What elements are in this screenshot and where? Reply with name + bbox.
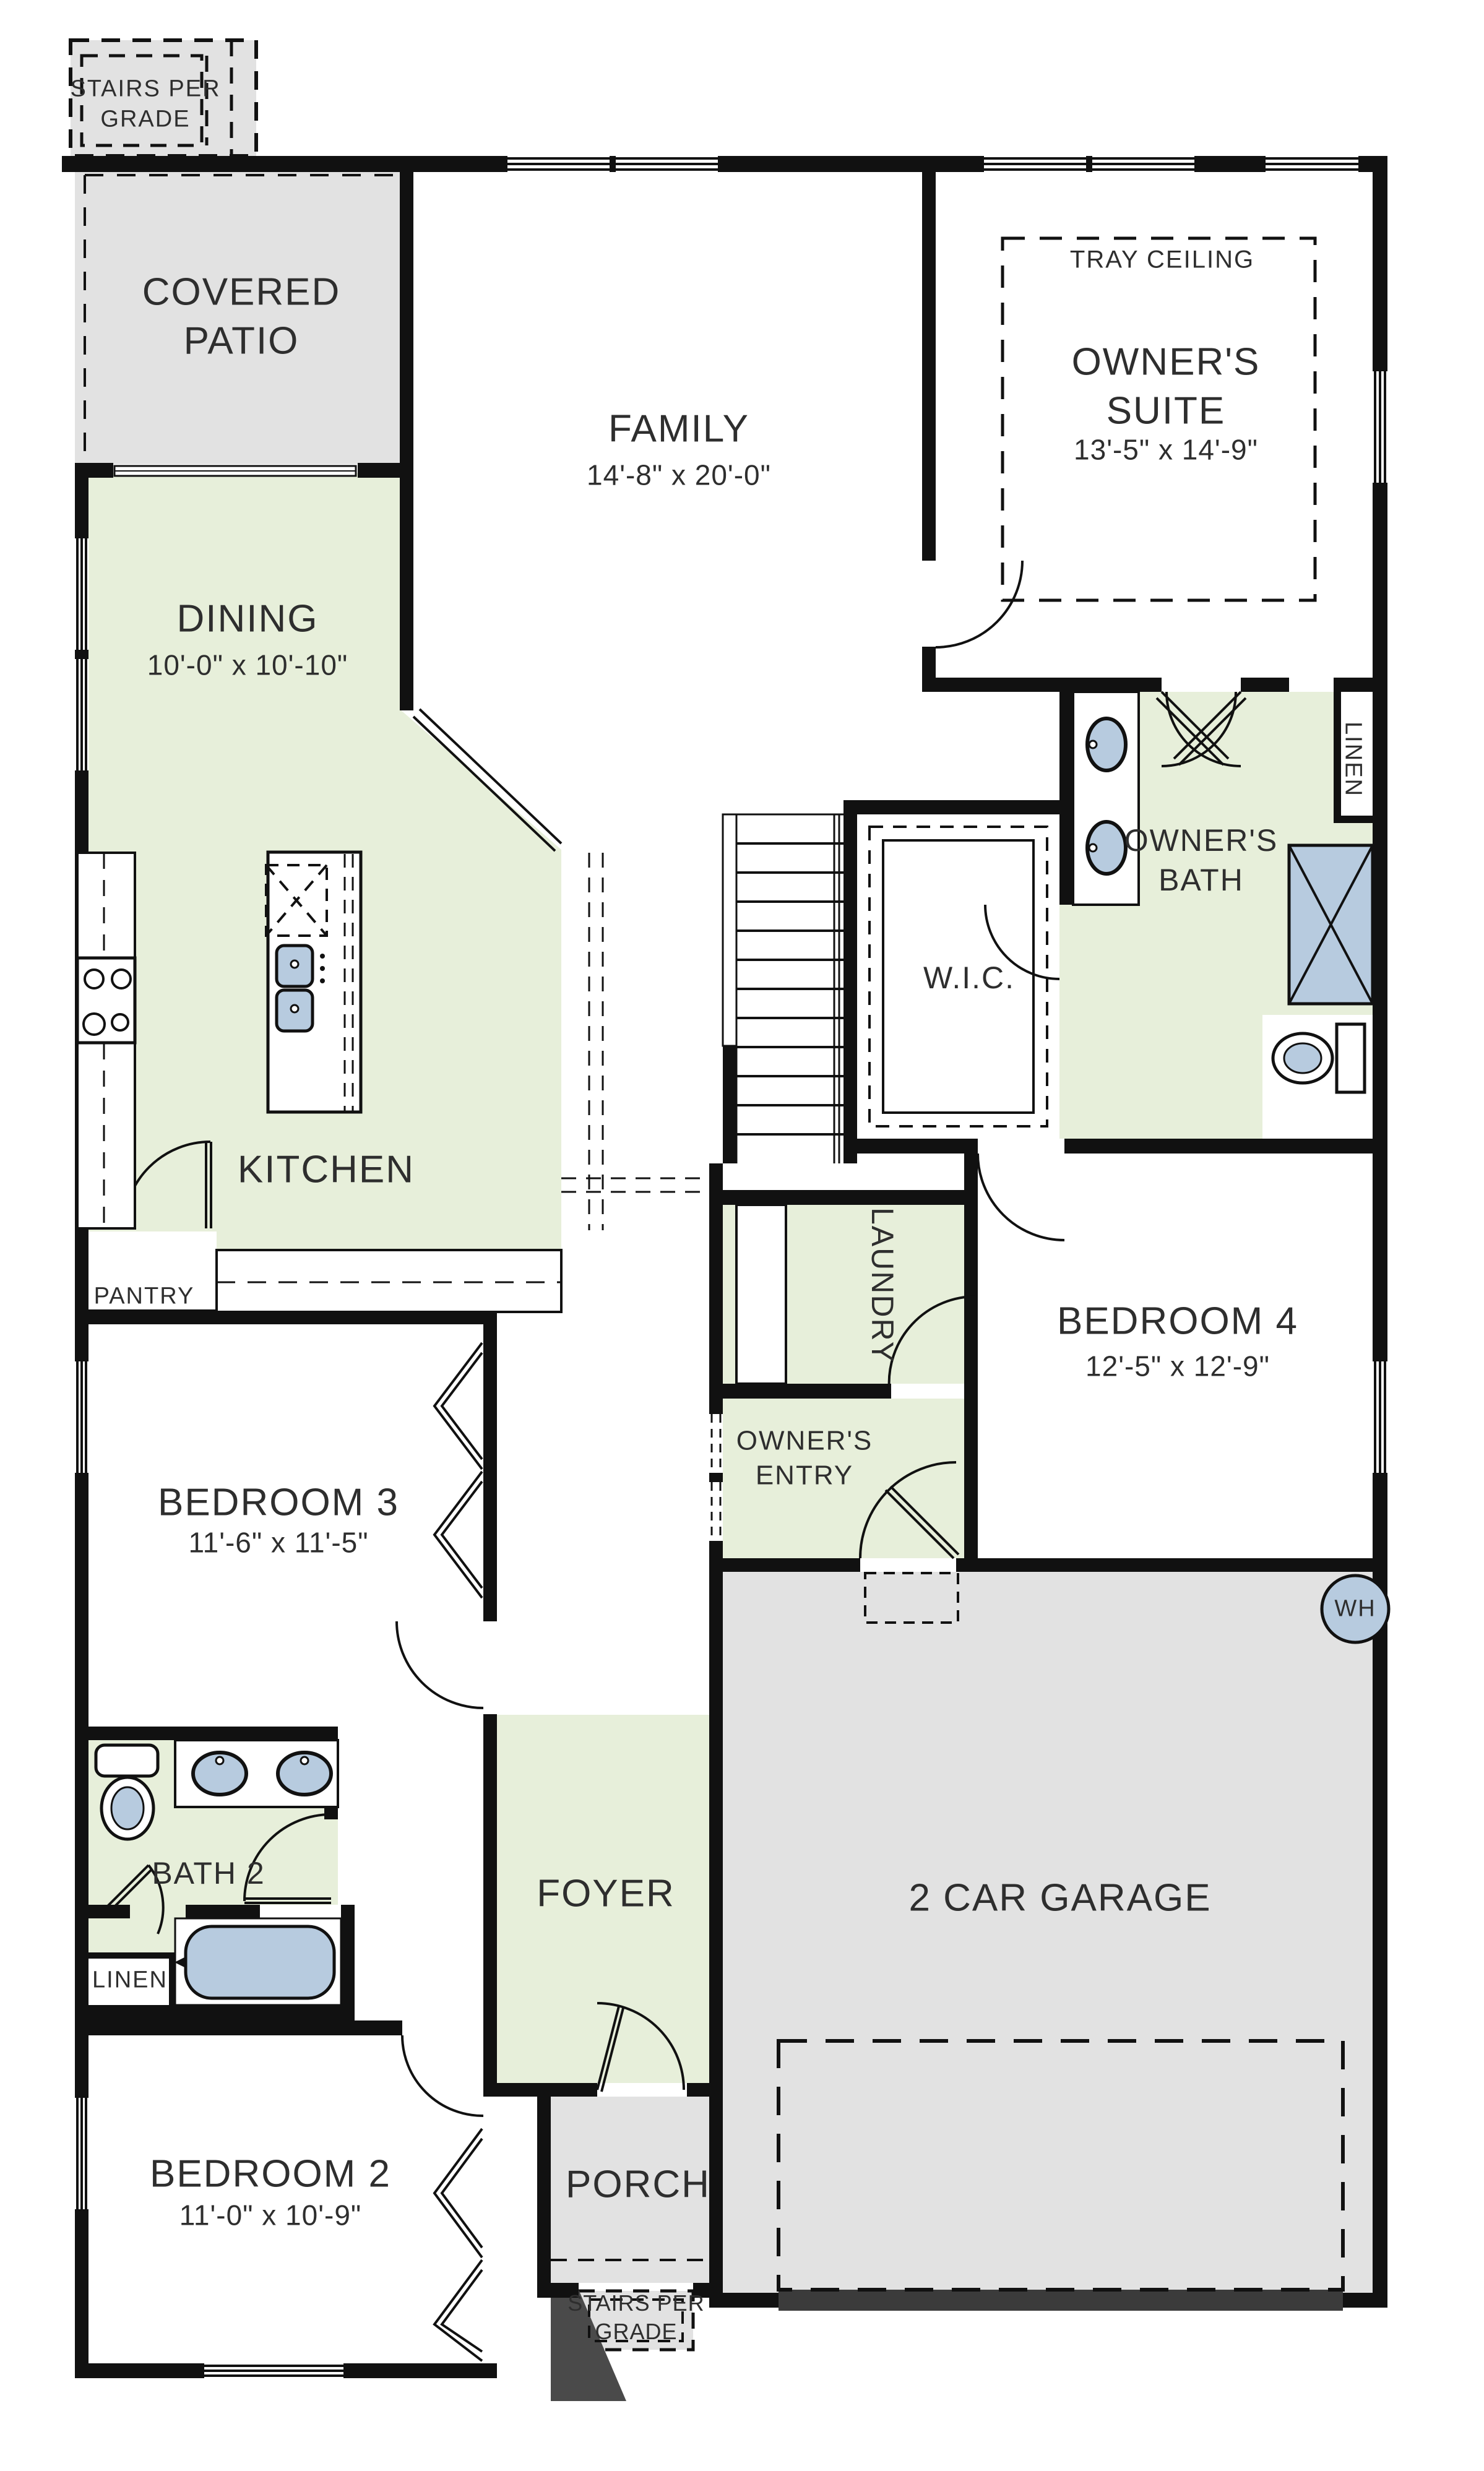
water-heater-label: WH (1334, 1594, 1376, 1624)
foyer-label: FOYER (482, 1869, 730, 1918)
tray-ceiling-label: TRAY CEILING (1007, 244, 1317, 275)
garage-step (865, 1573, 958, 1623)
owners-suite-dims: 13'-5" x 14'-9" (1011, 432, 1321, 468)
kitchen-back-counter (217, 1250, 561, 1312)
bedroom3-dims: 11'-6" x 11'-5" (124, 1525, 433, 1561)
owners-entry-label: OWNER'S ENTRY (718, 1424, 891, 1494)
bathtub-icon (175, 1918, 341, 2005)
window-right-bedroom4 (1373, 1361, 1387, 1473)
window-bottom-bedroom2 (204, 2363, 343, 2378)
owners-bath-label: OWNER'S BATH (1105, 821, 1297, 900)
kitchen-label: KITCHEN (171, 1145, 481, 1194)
window-left-bedroom2 (75, 2098, 88, 2209)
sliding-door (114, 466, 356, 476)
laundry-label: LAUNDRY (863, 1207, 902, 1363)
bedroom4-door (978, 1154, 1064, 1240)
family-label: FAMILY (524, 404, 834, 453)
dining-label: DINING (93, 594, 402, 643)
window-right-owners-suite (1373, 371, 1387, 483)
toilet-icon (96, 1745, 158, 1839)
garage-label: 2 CAR GARAGE (843, 1873, 1277, 1922)
garage-area (723, 1572, 1373, 2293)
linen-suite-label: LINEN (1338, 722, 1368, 797)
wic-label: W.I.C. (876, 958, 1062, 998)
window-top-owners-suite (984, 156, 1358, 172)
dining-dims: 10'-0" x 10'-10" (93, 647, 402, 684)
bedroom3-label: BEDROOM 3 (105, 1478, 452, 1527)
linen-bath-label: LINEN (68, 1965, 192, 1996)
window-left-bedroom3 (75, 1361, 88, 1473)
stairs-top-label: STAIRS PER GRADE (65, 74, 226, 134)
bedroom2-door (402, 2035, 483, 2116)
bedroom4-label: BEDROOM 4 (1004, 1296, 1351, 1345)
owners-suite-door (936, 561, 1022, 647)
bedroom2-dims: 11'-0" x 10'-9" (116, 2197, 425, 2234)
covered-patio-label: COVERED PATIO (133, 268, 350, 366)
stairs-bottom-label: STAIRS PER GRADE (562, 2289, 710, 2346)
stairs (723, 814, 843, 1163)
porch-label: PORCH (514, 2160, 762, 2209)
floor-plan: STAIRS PER GRADE COVERED PATIO FAMILY 14… (0, 0, 1484, 2471)
stair-treads (736, 843, 843, 1134)
owners-suite-label: OWNER'S SUITE (1042, 338, 1290, 436)
laundry-counter (736, 1205, 786, 1384)
bedroom2-label: BEDROOM 2 (97, 2149, 444, 2198)
bedroom4-dims: 12'-5" x 12'-9" (1023, 1348, 1332, 1385)
bath2-label: BATH 2 (116, 1853, 301, 1893)
family-dims: 14'-8" x 20'-0" (524, 457, 834, 494)
pantry-label: PANTRY (51, 1282, 237, 1312)
bedroom3-door (397, 1621, 483, 1708)
garage-door-bar (779, 2290, 1343, 2311)
